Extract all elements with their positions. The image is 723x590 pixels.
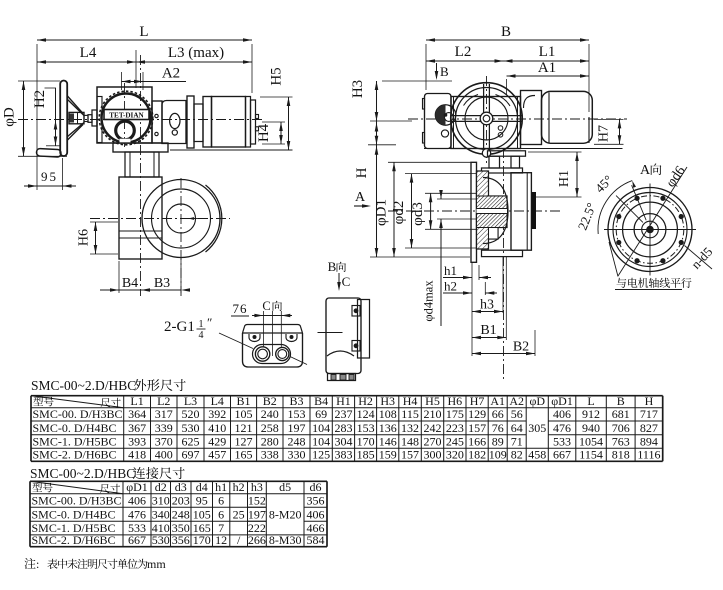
svg-text:H1: H1 (336, 394, 351, 408)
svg-text:170: 170 (357, 435, 375, 449)
svg-text:12: 12 (215, 533, 227, 547)
svg-text:148: 148 (401, 435, 419, 449)
svg-text:1116: 1116 (637, 448, 660, 462)
svg-text:245: 245 (446, 435, 464, 449)
svg-text:H2: H2 (32, 90, 48, 108)
svg-text:1054: 1054 (579, 435, 603, 449)
svg-text:B1: B1 (480, 323, 496, 338)
svg-text:940: 940 (582, 421, 600, 435)
svg-text:H4: H4 (256, 123, 272, 142)
svg-text:457: 457 (208, 448, 226, 462)
svg-text:φD1: φD1 (374, 199, 390, 226)
svg-text:6: 6 (218, 494, 224, 508)
svg-text:153: 153 (357, 421, 375, 435)
svg-text:406: 406 (307, 508, 325, 522)
svg-text:A: A (640, 163, 651, 178)
svg-text:82: 82 (511, 448, 523, 462)
svg-text:SMC-00~2.D/HBC: SMC-00~2.D/HBC (31, 378, 136, 393)
svg-text:320: 320 (446, 448, 464, 462)
svg-text:SMC-2. D/H6BC: SMC-2. D/H6BC (33, 448, 117, 462)
svg-text:340: 340 (152, 508, 170, 522)
svg-text:C: C (342, 274, 351, 289)
svg-text:φD: φD (2, 107, 18, 127)
svg-text:95: 95 (41, 169, 58, 184)
svg-text:L2: L2 (157, 394, 170, 408)
svg-text:827: 827 (640, 421, 658, 435)
svg-text:339: 339 (155, 421, 173, 435)
svg-text:159: 159 (379, 448, 397, 462)
svg-text:H6: H6 (448, 394, 463, 408)
svg-text:SMC-00. D/H3BC: SMC-00. D/H3BC (32, 494, 122, 508)
svg-text:124: 124 (357, 407, 375, 421)
svg-text:300: 300 (424, 448, 442, 462)
svg-text:115: 115 (401, 407, 419, 421)
svg-text:210: 210 (424, 407, 442, 421)
svg-text:d6: d6 (310, 480, 322, 494)
svg-text:4: 4 (199, 330, 204, 341)
svg-text:197: 197 (288, 421, 306, 435)
svg-text:304: 304 (334, 435, 352, 449)
svg-text:105: 105 (193, 508, 211, 522)
svg-text:SMC-0. D/H4BC: SMC-0. D/H4BC (33, 421, 117, 435)
svg-text:121: 121 (235, 421, 253, 435)
svg-text:64: 64 (511, 421, 523, 435)
svg-text:H: H (645, 394, 654, 408)
svg-text:B: B (617, 394, 625, 408)
svg-text:108: 108 (379, 407, 397, 421)
svg-text:d2: d2 (155, 480, 167, 494)
svg-text:φd4max: φd4max (422, 280, 436, 322)
svg-text:280: 280 (261, 435, 279, 449)
svg-text:681: 681 (612, 407, 630, 421)
svg-text:φD1: φD1 (551, 394, 573, 408)
svg-text:SMC-00. D/H3BC: SMC-00. D/H3BC (33, 407, 123, 421)
svg-text:400: 400 (155, 448, 173, 462)
svg-text:406: 406 (553, 407, 571, 421)
svg-text:h2: h2 (233, 480, 245, 494)
svg-text:d5: d5 (279, 480, 291, 494)
svg-text:66: 66 (492, 407, 504, 421)
svg-text:127: 127 (235, 435, 253, 449)
svg-text:L1: L1 (539, 44, 556, 60)
svg-text:667: 667 (553, 448, 571, 462)
svg-text:A2: A2 (162, 66, 180, 82)
svg-text:B: B (501, 24, 511, 40)
svg-text:h2: h2 (444, 279, 457, 294)
svg-text:625: 625 (182, 435, 200, 449)
svg-text:B3: B3 (154, 276, 170, 291)
svg-text:69: 69 (315, 407, 327, 421)
svg-text:76: 76 (233, 301, 248, 316)
svg-text:165: 165 (235, 448, 253, 462)
svg-text:912: 912 (582, 407, 600, 421)
svg-text:242: 242 (424, 421, 442, 435)
svg-text:H5: H5 (425, 394, 440, 408)
svg-text:104: 104 (312, 421, 330, 435)
svg-text:185: 185 (357, 448, 375, 462)
svg-text:153: 153 (288, 407, 306, 421)
svg-text:h3: h3 (251, 480, 263, 494)
svg-text:h1: h1 (444, 263, 457, 278)
svg-text:95: 95 (196, 494, 208, 508)
svg-text:584: 584 (307, 533, 325, 547)
svg-text:418: 418 (128, 448, 146, 462)
svg-text:B2: B2 (513, 340, 529, 355)
svg-text:170: 170 (193, 533, 211, 547)
svg-text:248: 248 (172, 508, 190, 522)
svg-text:105: 105 (235, 407, 253, 421)
svg-text:717: 717 (640, 407, 658, 421)
svg-text:818: 818 (612, 448, 630, 462)
svg-text:166: 166 (468, 435, 486, 449)
svg-text:458: 458 (528, 448, 546, 462)
svg-text:1: 1 (199, 319, 204, 330)
svg-text:C: C (262, 299, 270, 313)
svg-text:283: 283 (334, 421, 352, 435)
svg-text:476: 476 (553, 421, 571, 435)
svg-text:1154: 1154 (579, 448, 603, 462)
svg-text:mm: mm (147, 557, 166, 571)
svg-text:TET-DIAN: TET-DIAN (109, 112, 144, 120)
svg-text:SMC-00~2.D/HBC: SMC-00~2.D/HBC (30, 466, 135, 481)
svg-text:L1: L1 (130, 394, 143, 408)
svg-text:B2: B2 (263, 394, 277, 408)
svg-text:B3: B3 (289, 394, 303, 408)
svg-text:H2: H2 (358, 394, 373, 408)
svg-text:248: 248 (288, 435, 306, 449)
svg-text:367: 367 (128, 421, 146, 435)
svg-text:H4: H4 (403, 394, 418, 408)
svg-text:H5: H5 (269, 67, 285, 85)
svg-text:SMC-2. D/H6BC: SMC-2. D/H6BC (32, 533, 116, 547)
svg-text:φd3: φd3 (410, 202, 426, 226)
svg-text:104: 104 (312, 435, 330, 449)
svg-text:A: A (355, 190, 366, 205)
svg-text:6: 6 (218, 508, 224, 522)
svg-text:129: 129 (468, 407, 486, 421)
svg-text:A1: A1 (490, 394, 505, 408)
svg-text:B: B (440, 64, 449, 79)
svg-text:429: 429 (208, 435, 226, 449)
svg-text:533: 533 (553, 435, 571, 449)
svg-text:H3: H3 (350, 80, 366, 98)
svg-text:317: 317 (155, 407, 173, 421)
svg-text:φD: φD (529, 394, 545, 408)
svg-text:H3: H3 (380, 394, 395, 408)
svg-text:76: 76 (492, 421, 504, 435)
svg-text:894: 894 (640, 435, 658, 449)
svg-text:136: 136 (379, 421, 397, 435)
svg-text:237: 237 (334, 407, 352, 421)
svg-text:356: 356 (307, 494, 325, 508)
svg-text:240: 240 (261, 407, 279, 421)
svg-text:H: H (354, 167, 370, 178)
svg-text:8-M20: 8-M20 (269, 508, 302, 522)
svg-text:SMC-1. D/H5BC: SMC-1. D/H5BC (33, 435, 117, 449)
svg-text:157: 157 (401, 448, 419, 462)
svg-text:146: 146 (379, 435, 397, 449)
svg-text:B4: B4 (314, 394, 328, 408)
svg-text:56: 56 (511, 407, 523, 421)
svg-text:393: 393 (128, 435, 146, 449)
svg-text:258: 258 (261, 421, 279, 435)
svg-text:310: 310 (152, 494, 170, 508)
svg-text:H6: H6 (77, 229, 92, 246)
svg-text:530: 530 (152, 533, 170, 547)
svg-text:370: 370 (155, 435, 173, 449)
svg-text:L3: L3 (184, 394, 197, 408)
svg-text:197: 197 (248, 508, 266, 522)
svg-text:B: B (328, 259, 337, 274)
svg-text:706: 706 (612, 421, 630, 435)
svg-text:25: 25 (233, 508, 245, 522)
svg-text:L: L (139, 24, 148, 40)
svg-text:530: 530 (182, 421, 200, 435)
svg-text:182: 182 (468, 448, 486, 462)
svg-text:H7: H7 (597, 125, 612, 142)
svg-text:h3: h3 (480, 298, 494, 313)
svg-text:φD1: φD1 (126, 480, 148, 494)
svg-text:305: 305 (528, 421, 546, 435)
svg-text:270: 270 (424, 435, 442, 449)
svg-text:H7: H7 (470, 394, 485, 408)
svg-text:157: 157 (468, 421, 486, 435)
svg-text:L: L (587, 394, 594, 408)
svg-text:392: 392 (208, 407, 226, 421)
svg-text:223: 223 (446, 421, 464, 435)
svg-text:266: 266 (248, 533, 266, 547)
svg-text:203: 203 (172, 494, 190, 508)
svg-text:330: 330 (288, 448, 306, 462)
svg-text:109: 109 (489, 448, 507, 462)
svg-text:125: 125 (312, 448, 330, 462)
svg-text:d3: d3 (175, 480, 187, 494)
svg-text:φd2: φd2 (391, 201, 407, 225)
svg-text:A1: A1 (538, 60, 556, 76)
svg-text:H1: H1 (557, 170, 572, 187)
svg-text:L4: L4 (80, 45, 97, 61)
svg-text:364: 364 (128, 407, 146, 421)
svg-text:763: 763 (612, 435, 630, 449)
svg-text:h1: h1 (215, 480, 227, 494)
svg-text:667: 667 (128, 533, 146, 547)
svg-text:89: 89 (492, 435, 504, 449)
svg-text:d4: d4 (196, 480, 208, 494)
svg-text:A2: A2 (509, 394, 524, 408)
svg-text:71: 71 (511, 435, 523, 449)
svg-text:L4: L4 (211, 394, 224, 408)
svg-text:406: 406 (128, 494, 146, 508)
svg-text:2-G1: 2-G1 (164, 319, 195, 335)
svg-text:L3 (max): L3 (max) (168, 45, 224, 61)
svg-text:476: 476 (128, 508, 146, 522)
svg-text:175: 175 (446, 407, 464, 421)
svg-text:383: 383 (334, 448, 352, 462)
svg-text:697: 697 (182, 448, 200, 462)
svg-text:132: 132 (401, 421, 419, 435)
svg-text:B1: B1 (237, 394, 251, 408)
svg-text:8-M30: 8-M30 (269, 533, 302, 547)
svg-text:″: ″ (207, 315, 212, 330)
svg-text:338: 338 (261, 448, 279, 462)
svg-text:356: 356 (172, 533, 190, 547)
svg-text:B4: B4 (122, 276, 138, 291)
svg-text:410: 410 (208, 421, 226, 435)
svg-text:SMC-0. D/H4BC: SMC-0. D/H4BC (32, 508, 116, 522)
svg-text:L2: L2 (455, 44, 472, 60)
svg-text:520: 520 (182, 407, 200, 421)
svg-text::: : (36, 557, 39, 571)
svg-text:152: 152 (248, 494, 266, 508)
